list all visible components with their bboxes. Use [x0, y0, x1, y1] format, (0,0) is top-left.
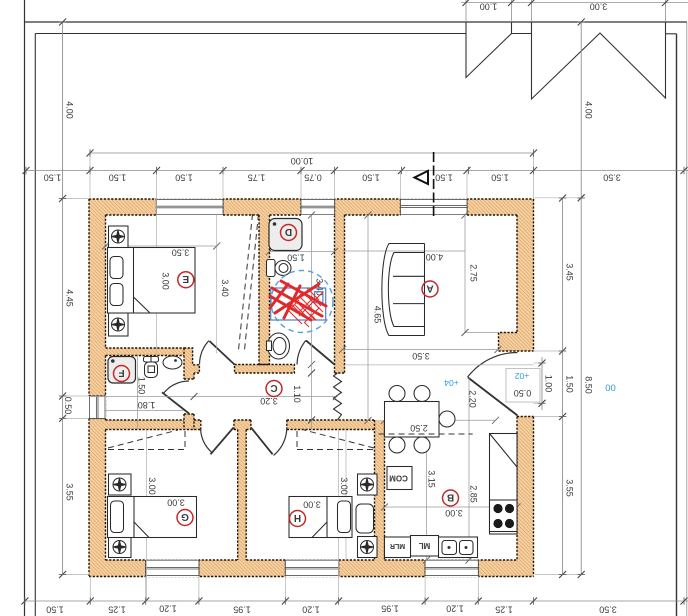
svg-text:3.55: 3.55: [565, 479, 575, 497]
svg-text:3.55: 3.55: [65, 483, 75, 501]
svg-text:3.45: 3.45: [565, 263, 575, 281]
svg-text:1.25: 1.25: [108, 605, 126, 615]
svg-text:1.20: 1.20: [446, 604, 464, 614]
svg-text:1.95: 1.95: [233, 605, 251, 615]
svg-text:3.50: 3.50: [172, 248, 190, 258]
svg-text:2.20: 2.20: [468, 390, 478, 408]
svg-text:10.00: 10.00: [291, 156, 314, 166]
svg-text:E: E: [182, 273, 189, 284]
svg-text:8.50: 8.50: [584, 376, 594, 394]
svg-text:1.50: 1.50: [565, 375, 575, 393]
svg-text:C: C: [270, 382, 277, 393]
svg-text:1.10: 1.10: [292, 385, 302, 403]
svg-text:1.50: 1.50: [435, 173, 453, 183]
svg-text:1.50: 1.50: [362, 173, 380, 183]
svg-text:1.50: 1.50: [109, 173, 127, 183]
svg-text:3.20: 3.20: [260, 396, 278, 406]
svg-text:3.00: 3.00: [303, 500, 321, 510]
svg-text:3.00: 3.00: [161, 272, 171, 290]
svg-text:4.00: 4.00: [426, 252, 444, 262]
svg-text:+04: +04: [444, 378, 459, 388]
svg-text:4.45: 4.45: [65, 289, 75, 307]
svg-text:1.50: 1.50: [44, 173, 62, 183]
svg-text:4.65: 4.65: [373, 306, 383, 324]
svg-text:1.20: 1.20: [302, 605, 320, 615]
svg-text:H: H: [294, 512, 301, 523]
svg-text:3.15: 3.15: [427, 470, 437, 488]
svg-text:1.50: 1.50: [287, 253, 305, 263]
svg-text:2.50: 2.50: [410, 423, 428, 433]
svg-text:3.00: 3.00: [445, 508, 463, 518]
svg-text:1.75: 1.75: [248, 173, 266, 183]
svg-text:4.00: 4.00: [65, 101, 75, 119]
svg-text:1.20: 1.20: [159, 604, 177, 614]
svg-text:3.00: 3.00: [147, 477, 157, 495]
svg-text:1.00: 1.00: [480, 2, 498, 12]
svg-text:F: F: [118, 367, 124, 378]
svg-text:4.00: 4.00: [584, 101, 594, 119]
svg-text:3.50: 3.50: [603, 173, 621, 183]
svg-text:2.75: 2.75: [469, 264, 479, 282]
svg-text:COM: COM: [389, 474, 408, 483]
svg-text:B: B: [447, 492, 454, 503]
svg-text:3.00: 3.00: [590, 2, 608, 12]
svg-text:ML: ML: [419, 541, 431, 550]
svg-text:3.50: 3.50: [412, 351, 430, 361]
svg-text:MLR: MLR: [390, 542, 405, 549]
svg-text:0.50: 0.50: [63, 397, 73, 415]
svg-text:A: A: [426, 283, 433, 294]
svg-text:00: 00: [605, 382, 616, 393]
svg-text:3.40: 3.40: [220, 279, 230, 297]
svg-text:G: G: [181, 511, 189, 522]
svg-text:3.00: 3.00: [339, 477, 349, 495]
svg-text:+02: +02: [515, 371, 530, 381]
svg-text:1.50: 1.50: [491, 173, 509, 183]
svg-text:1.50: 1.50: [175, 173, 193, 183]
svg-text:0.75: 0.75: [304, 173, 322, 183]
svg-text:2.85: 2.85: [469, 485, 479, 503]
svg-text:1.50: 1.50: [46, 605, 64, 615]
svg-text:0.50: 0.50: [514, 388, 532, 398]
svg-text:3.50: 3.50: [599, 605, 617, 615]
svg-text:D: D: [285, 226, 292, 237]
svg-text:1.25: 1.25: [495, 605, 513, 615]
svg-text:1.00: 1.00: [544, 375, 554, 393]
svg-text:1.95: 1.95: [381, 604, 399, 614]
svg-text:3.00: 3.00: [167, 498, 185, 508]
svg-text:1.80: 1.80: [138, 400, 156, 410]
svg-text:1.50: 1.50: [137, 377, 147, 395]
